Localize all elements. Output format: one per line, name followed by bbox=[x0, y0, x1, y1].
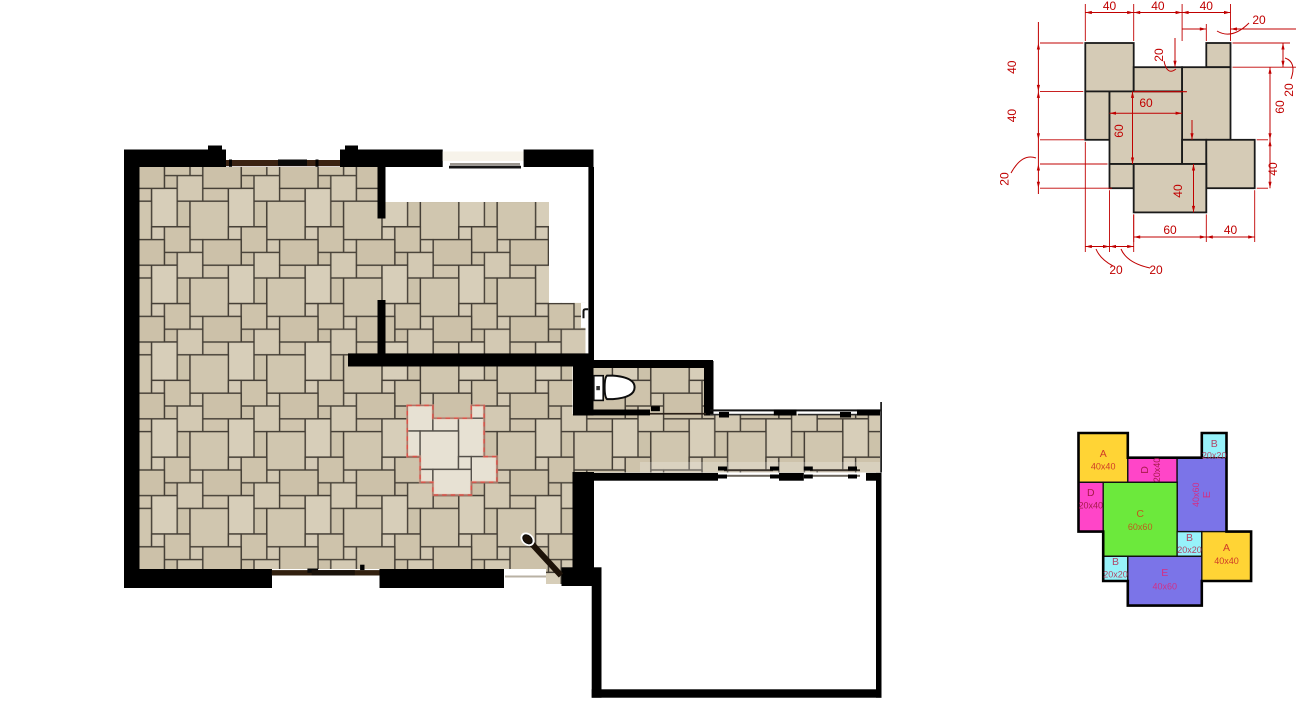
svg-text:C: C bbox=[1136, 508, 1144, 520]
svg-text:40x40: 40x40 bbox=[1091, 462, 1116, 472]
svg-text:20: 20 bbox=[998, 172, 1012, 186]
svg-text:60: 60 bbox=[1112, 124, 1126, 138]
svg-text:40: 40 bbox=[1103, 0, 1117, 13]
svg-text:40: 40 bbox=[1224, 223, 1238, 237]
svg-text:40x60: 40x60 bbox=[1191, 482, 1201, 507]
svg-text:E: E bbox=[1161, 567, 1168, 579]
svg-text:60: 60 bbox=[1139, 96, 1153, 110]
svg-text:20: 20 bbox=[1109, 263, 1123, 277]
svg-text:A: A bbox=[1100, 448, 1107, 460]
svg-text:20x20: 20x20 bbox=[1177, 545, 1202, 555]
svg-text:40: 40 bbox=[1005, 109, 1019, 123]
svg-text:20x40: 20x40 bbox=[1079, 501, 1104, 511]
svg-text:40x60: 40x60 bbox=[1153, 582, 1178, 592]
svg-text:D: D bbox=[1087, 487, 1095, 499]
svg-text:60: 60 bbox=[1273, 100, 1287, 114]
svg-text:20x40: 20x40 bbox=[1152, 458, 1162, 483]
svg-text:20x20: 20x20 bbox=[1103, 570, 1128, 580]
svg-text:20: 20 bbox=[1149, 263, 1163, 277]
svg-text:B: B bbox=[1211, 438, 1218, 450]
svg-text:B: B bbox=[1112, 556, 1119, 568]
svg-text:60: 60 bbox=[1163, 223, 1177, 237]
svg-text:B: B bbox=[1186, 532, 1193, 544]
svg-text:A: A bbox=[1223, 542, 1230, 554]
svg-text:20x20: 20x20 bbox=[1202, 451, 1227, 461]
svg-text:40: 40 bbox=[1266, 162, 1280, 176]
svg-text:20: 20 bbox=[1282, 83, 1296, 97]
svg-text:20: 20 bbox=[1252, 13, 1266, 27]
svg-text:60x60: 60x60 bbox=[1128, 522, 1153, 532]
svg-text:D: D bbox=[1139, 466, 1151, 474]
svg-text:20: 20 bbox=[1152, 48, 1166, 62]
svg-text:E: E bbox=[1201, 491, 1213, 498]
svg-text:40: 40 bbox=[1151, 0, 1165, 13]
svg-text:40: 40 bbox=[1005, 60, 1019, 74]
svg-text:40: 40 bbox=[1171, 184, 1185, 198]
svg-text:40x40: 40x40 bbox=[1214, 556, 1239, 566]
svg-text:40: 40 bbox=[1200, 0, 1214, 13]
